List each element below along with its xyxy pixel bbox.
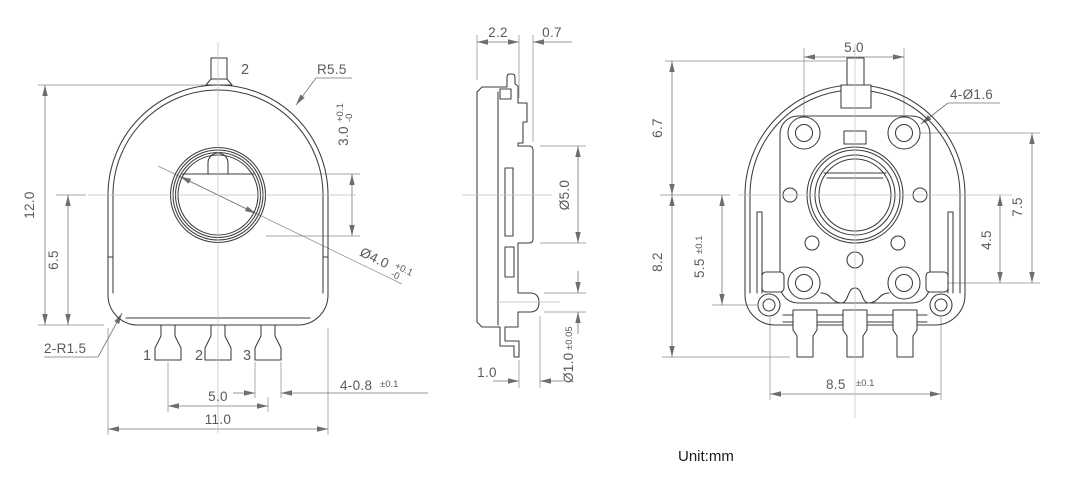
side-body-outline — [477, 74, 539, 357]
front-terminal-1 — [155, 325, 181, 360]
terminal-3-label: 3 — [243, 348, 251, 364]
dim-lead-dia: Ø1.0 ±0.05 — [561, 326, 576, 383]
side-dimension-labels: 2.2 0.7 Ø5.0 Ø1.0 ±0.05 1.0 — [477, 25, 576, 383]
back-shaft-tab — [847, 58, 864, 85]
back-shaft-collar — [841, 85, 871, 108]
terminal-1-label: 1 — [143, 348, 151, 364]
dim-terminal-width: 4-0.8 — [340, 378, 372, 393]
dim-hole-pitch-v: 7.5 — [1010, 197, 1025, 217]
back-terminal-3 — [893, 310, 917, 357]
dim-boss-dia: Ø5.0 — [557, 180, 572, 210]
front-view: 12.0 6.5 11.0 5.0 R5.5 2-R1.5 4-0.8 ±0.1… — [22, 42, 428, 435]
svg-text:Ø4.0: Ø4.0 — [358, 244, 392, 271]
dim-top-to-center: 6.7 — [650, 118, 665, 138]
dim-overall-height: 12.0 — [22, 191, 37, 218]
front-terminal-3 — [255, 325, 281, 360]
front-top-tab — [206, 58, 232, 85]
dim-center-to-lug: 5.5 ±0.1 — [692, 236, 707, 278]
svg-text:Ø1.0: Ø1.0 — [561, 353, 576, 383]
unit-note: Unit:mm — [678, 448, 734, 465]
svg-text:3.0: 3.0 — [336, 126, 351, 146]
dim-terminal-pitch: 5.0 — [208, 389, 228, 404]
terminal-2-label: 2 — [195, 348, 203, 364]
dim-center-to-base: 6.5 — [46, 250, 61, 270]
back-dimension-labels: 5.0 4-Ø1.6 6.7 8.2 5.5 ±0.1 7.5 4.5 8.5 … — [650, 40, 1025, 392]
back-view: 5.0 4-Ø1.6 6.7 8.2 5.5 ±0.1 7.5 4.5 8.5 … — [650, 40, 1040, 418]
dim-boss-height: 0.7 — [542, 25, 562, 40]
svg-text:±0.05: ±0.05 — [564, 326, 575, 350]
svg-text:±0.1: ±0.1 — [694, 236, 705, 254]
dim-terminal-width-tol: ±0.1 — [380, 379, 398, 390]
back-terminal-1 — [793, 310, 817, 357]
dim-hole-pitch-h: 5.0 — [844, 40, 864, 55]
dim-body-thickness: 2.2 — [488, 25, 508, 40]
side-geometry — [477, 74, 539, 357]
dim-lug-pitch: 8.5 — [826, 377, 846, 392]
dim-top-radius: R5.5 — [317, 62, 347, 77]
front-tab-label: 2 — [241, 62, 249, 78]
svg-text:-0: -0 — [344, 114, 355, 122]
svg-text:-0: -0 — [389, 269, 401, 283]
dim-base-corner-radius: 2-R1.5 — [44, 341, 86, 356]
dim-shaft-flat: 3.0 +0.1 -0 — [335, 103, 355, 146]
side-rotor-slot — [505, 168, 513, 236]
side-tab-end — [500, 89, 511, 99]
dim-center-to-lower-holes: 4.5 — [979, 230, 994, 250]
technical-drawing-sheet: 12.0 6.5 11.0 5.0 R5.5 2-R1.5 4-0.8 ±0.1… — [0, 0, 1066, 484]
dim-overall-width: 11.0 — [205, 412, 231, 427]
dim-center-to-lead-tip: 8.2 — [650, 252, 665, 272]
dim-lug-pitch-tol: ±0.1 — [856, 378, 874, 389]
svg-text:5.5: 5.5 — [692, 258, 707, 278]
side-view: 2.2 0.7 Ø5.0 Ø1.0 ±0.05 1.0 — [462, 25, 586, 388]
dim-lead-bend: 1.0 — [477, 365, 497, 380]
side-dimension-lines — [477, 42, 578, 381]
drawing-canvas: 12.0 6.5 11.0 5.0 R5.5 2-R1.5 4-0.8 ±0.1… — [0, 0, 1066, 484]
dim-mounting-holes: 4-Ø1.6 — [950, 87, 993, 102]
